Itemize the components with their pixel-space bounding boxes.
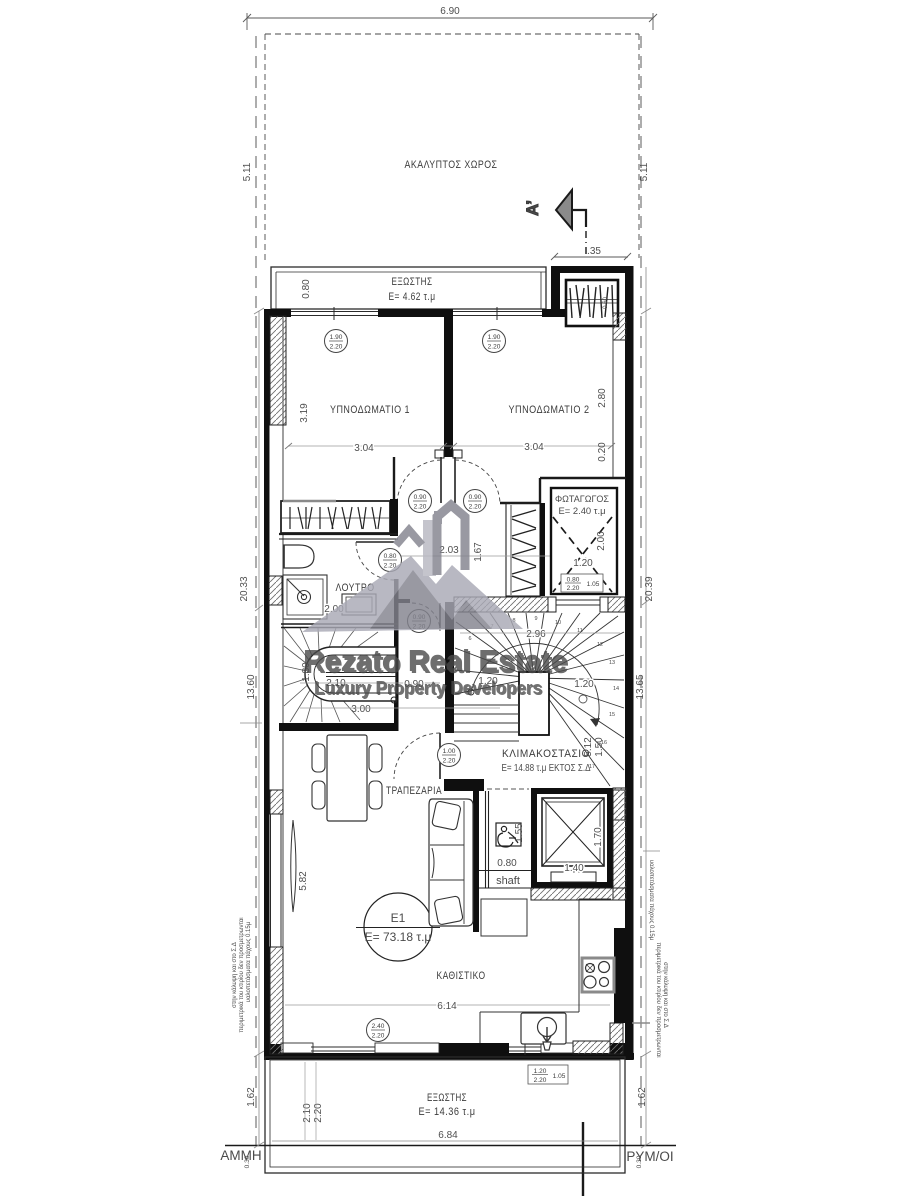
svg-text:9: 9: [534, 616, 537, 622]
svg-text:5.11: 5.11: [639, 162, 650, 181]
svg-text:2.20: 2.20: [414, 504, 427, 511]
svg-text:1.90: 1.90: [330, 334, 343, 341]
svg-text:5.11: 5.11: [242, 162, 253, 181]
svg-text:0.80: 0.80: [567, 577, 580, 584]
svg-text:ΤΡΑΠΕΖΑΡΙΑ: ΤΡΑΠΕΖΑΡΙΑ: [386, 785, 442, 797]
svg-text:1.05: 1.05: [553, 1073, 566, 1080]
svg-text:3.19: 3.19: [299, 403, 310, 423]
svg-text:υαλοπετάσματα πάχους 0.15μ: υαλοπετάσματα πάχους 0.15μ: [245, 921, 252, 1002]
svg-text:6.84: 6.84: [438, 1130, 458, 1141]
svg-text:14: 14: [613, 686, 619, 692]
svg-text:Luxury Property Developers: Luxury Property Developers: [314, 677, 542, 698]
svg-text:στην κάλυψη και στο Σ.Δ: στην κάλυψη και στο Σ.Δ: [231, 942, 238, 1008]
svg-text:0.60: 0.60: [603, 297, 609, 309]
svg-text:1.40: 1.40: [564, 863, 584, 874]
svg-text:2.20: 2.20: [330, 344, 343, 351]
svg-text:ΦΩΤΑΓΩΓΟΣ: ΦΩΤΑΓΩΓΟΣ: [555, 494, 609, 505]
svg-text:5.12: 5.12: [583, 737, 594, 757]
svg-text:E= 4.62 τ.μ: E= 4.62 τ.μ: [389, 291, 436, 303]
svg-text:13.65: 13.65: [635, 674, 646, 699]
svg-text:13.60: 13.60: [246, 674, 257, 699]
svg-text:.35: .35: [587, 246, 601, 257]
svg-text:15: 15: [609, 712, 615, 718]
svg-text:1.00: 1.00: [443, 748, 456, 755]
svg-text:3.04: 3.04: [354, 443, 374, 454]
svg-text:στην κάλυψη και στο Σ.Δ: στην κάλυψη και στο Σ.Δ: [662, 962, 669, 1028]
svg-text:2.20: 2.20: [567, 585, 580, 592]
svg-text:0.90: 0.90: [414, 494, 427, 501]
svg-text:1.05: 1.05: [587, 581, 600, 588]
svg-text:shaft: shaft: [496, 875, 520, 887]
svg-text:E= 2.40 τ.μ: E= 2.40 τ.μ: [559, 506, 606, 517]
svg-text:ΥΠΝΟΔΩΜΑΤΙΟ 1: ΥΠΝΟΔΩΜΑΤΙΟ 1: [330, 404, 410, 416]
svg-text:E= 73.18 τ.μ: E= 73.18 τ.μ: [365, 930, 432, 944]
svg-text:2.20: 2.20: [313, 1103, 324, 1123]
svg-text:2.20: 2.20: [534, 1077, 547, 1084]
svg-text:1.70: 1.70: [593, 827, 604, 847]
svg-text:2.10: 2.10: [302, 1103, 313, 1123]
svg-text:20.39: 20.39: [644, 576, 655, 601]
svg-text:20.33: 20.33: [239, 576, 250, 601]
svg-text:2.80: 2.80: [597, 388, 608, 408]
svg-text:0.80: 0.80: [384, 553, 397, 560]
svg-text:6.14: 6.14: [437, 1001, 457, 1012]
svg-text:3.04: 3.04: [524, 442, 544, 453]
svg-text:3.00: 3.00: [351, 704, 371, 715]
svg-text:1.20: 1.20: [573, 558, 593, 569]
svg-text:2.00: 2.00: [596, 531, 607, 551]
svg-text:1.90: 1.90: [488, 334, 501, 341]
svg-text:E1: E1: [391, 911, 406, 925]
svg-text:5.82: 5.82: [298, 871, 309, 891]
svg-text:1.20: 1.20: [574, 679, 594, 690]
svg-text:2.20: 2.20: [469, 504, 482, 511]
svg-text:ΑΜΜΗ: ΑΜΜΗ: [220, 1148, 261, 1163]
svg-text:1.55: 1.55: [514, 823, 525, 843]
svg-text:ΑΚΑΛΥΠΤΟΣ ΧΩΡΟΣ: ΑΚΑΛΥΠΤΟΣ ΧΩΡΟΣ: [405, 159, 498, 171]
svg-text:ΡΥΜ/ΟΙ: ΡΥΜ/ΟΙ: [626, 1149, 673, 1164]
svg-text:E= 14.88 τ.μ ΕΚΤΟΣ Σ.Δ: E= 14.88 τ.μ ΕΚΤΟΣ Σ.Δ: [502, 763, 591, 774]
svg-text:6: 6: [468, 636, 471, 642]
svg-text:2.96: 2.96: [526, 629, 546, 640]
svg-text:2.20: 2.20: [372, 1033, 385, 1040]
svg-text:1.50: 1.50: [594, 737, 605, 757]
svg-text:υαλοπετάσματα πάχους 0.15μ: υαλοπετάσματα πάχους 0.15μ: [648, 860, 655, 941]
svg-text:1.20: 1.20: [534, 1068, 547, 1075]
svg-text:περιμετρικά του κτιρίου δεν πρ: περιμετρικά του κτιρίου δεν προσμετρωντα…: [655, 942, 662, 1058]
svg-text:ΚΑΘΙΣΤΙΚΟ: ΚΑΘΙΣΤΙΚΟ: [437, 970, 486, 982]
svg-text:12: 12: [597, 642, 603, 648]
svg-text:1.67: 1.67: [473, 542, 484, 562]
svg-text:0.80: 0.80: [301, 279, 312, 299]
svg-text:13: 13: [609, 660, 615, 666]
svg-text:ΕΞΩΣΤΗΣ: ΕΞΩΣΤΗΣ: [392, 276, 433, 288]
svg-text:1.62: 1.62: [246, 1087, 257, 1107]
svg-text:2.20: 2.20: [443, 758, 456, 765]
svg-text:ΕΞΩΣΤΗΣ: ΕΞΩΣΤΗΣ: [427, 1092, 467, 1104]
svg-text:2.40: 2.40: [372, 1023, 385, 1030]
svg-text:0.20: 0.20: [597, 442, 608, 462]
svg-text:2.20: 2.20: [488, 344, 501, 351]
svg-text:Rezato Real Estate: Rezato Real Estate: [303, 643, 567, 678]
svg-text:E= 14.36 τ.μ: E= 14.36 τ.μ: [419, 1106, 476, 1118]
svg-text:ΚΛΙΜΑΚΟΣΤΑΣΙΟ: ΚΛΙΜΑΚΟΣΤΑΣΙΟ: [502, 748, 590, 760]
svg-text:περιμετρικά του κτιρίου δεν πρ: περιμετρικά του κτιρίου δεν προσμετρωντα…: [238, 917, 245, 1033]
svg-text:A’: A’: [523, 200, 542, 216]
svg-text:0.90: 0.90: [469, 494, 482, 501]
svg-text:6.90: 6.90: [440, 6, 460, 17]
svg-text:ΥΠΝΟΔΩΜΑΤΙΟ 2: ΥΠΝΟΔΩΜΑΤΙΟ 2: [509, 404, 590, 416]
svg-text:10: 10: [555, 620, 561, 626]
svg-text:0.80: 0.80: [497, 858, 517, 869]
svg-text:2.03: 2.03: [439, 545, 459, 556]
